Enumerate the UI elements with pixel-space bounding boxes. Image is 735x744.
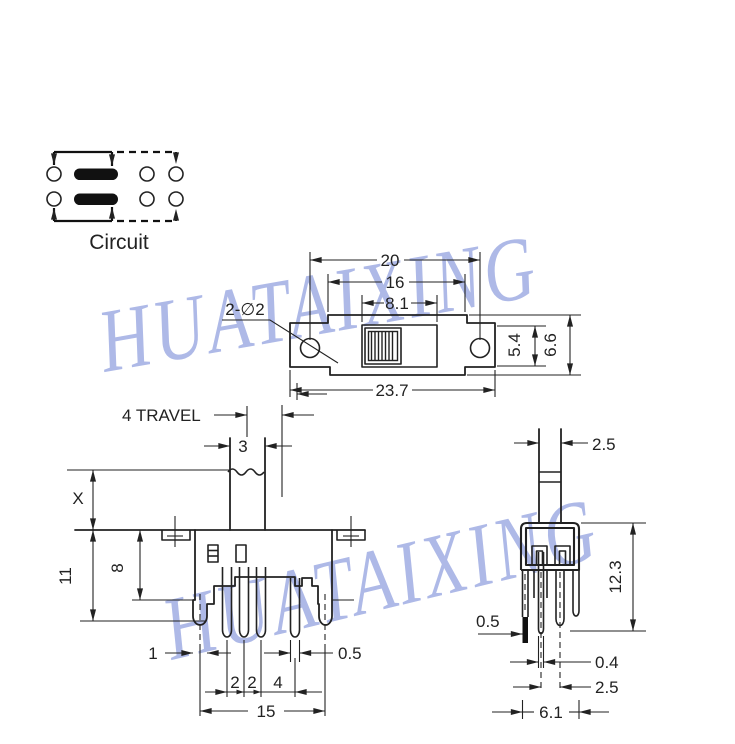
knob-hatching (372, 332, 393, 361)
dim-hole-span: 20 (381, 251, 400, 270)
dim-pin-span: 15 (257, 702, 276, 721)
dim-pin-pitch: 2.5 (595, 678, 619, 697)
contact-bar-bottom (74, 194, 118, 206)
watermark-text: HUATAIXING (153, 479, 609, 679)
dim-bracket-width: 1 (148, 644, 157, 663)
dim-pitch-c: 4 (273, 673, 282, 692)
watermark-text: HUATAIXING (90, 217, 546, 392)
mounting-hole-right (471, 339, 490, 358)
dim-overall-depth: 6.1 (539, 703, 563, 722)
bracket-tab (523, 617, 529, 643)
dim-ear-depth: 5.4 (505, 333, 524, 357)
dim-knob-width: 3 (238, 437, 247, 456)
circuit-label: Circuit (89, 231, 149, 254)
dim-pin-width: 0.5 (338, 644, 362, 663)
technical-drawing-page: HUATAIXING HUATAIXING Circuit (0, 0, 735, 744)
dim-body-height: 12.3 (606, 560, 625, 593)
circuit-diagram: Circuit (47, 152, 183, 254)
watermark-lower: HUATAIXING (153, 479, 609, 679)
dim-travel-label: 4 TRAVEL (122, 406, 201, 425)
dim-body-width: 16 (386, 273, 405, 292)
slide-switch-drawing: HUATAIXING HUATAIXING Circuit (0, 0, 735, 744)
dim-pitch-b: 2 (247, 673, 256, 692)
dim-height-total: 11 (56, 567, 75, 585)
dim-stem-width: 2.5 (592, 435, 616, 454)
dim-hole-note: 2-∅2 (225, 300, 264, 319)
dim-overall-width: 23.7 (375, 381, 408, 400)
dim-height-body: 8 (108, 563, 127, 572)
dim-pin-thickness: 0.4 (595, 653, 619, 672)
dim-tab-width: 0.5 (476, 612, 500, 631)
dim-body-depth: 6.6 (541, 333, 560, 357)
dim-window-width: 8.1 (385, 294, 409, 313)
watermark-upper: HUATAIXING (90, 217, 546, 392)
contact-bar-top (74, 169, 118, 181)
dim-pitch-a: 2 (230, 673, 239, 692)
dim-height-x: X (72, 489, 83, 508)
